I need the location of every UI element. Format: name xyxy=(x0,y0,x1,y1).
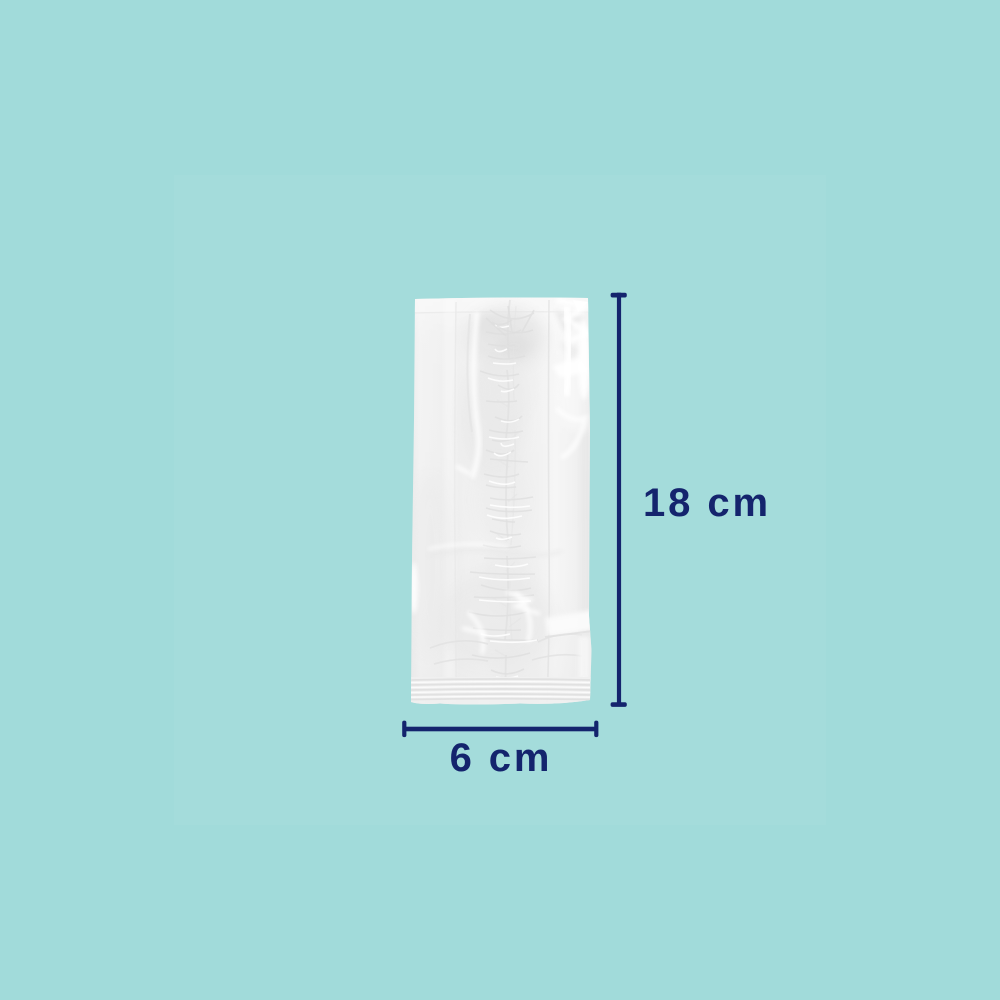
svg-text:6 cm: 6 cm xyxy=(450,736,553,780)
svg-text:18 cm: 18 cm xyxy=(643,481,771,525)
